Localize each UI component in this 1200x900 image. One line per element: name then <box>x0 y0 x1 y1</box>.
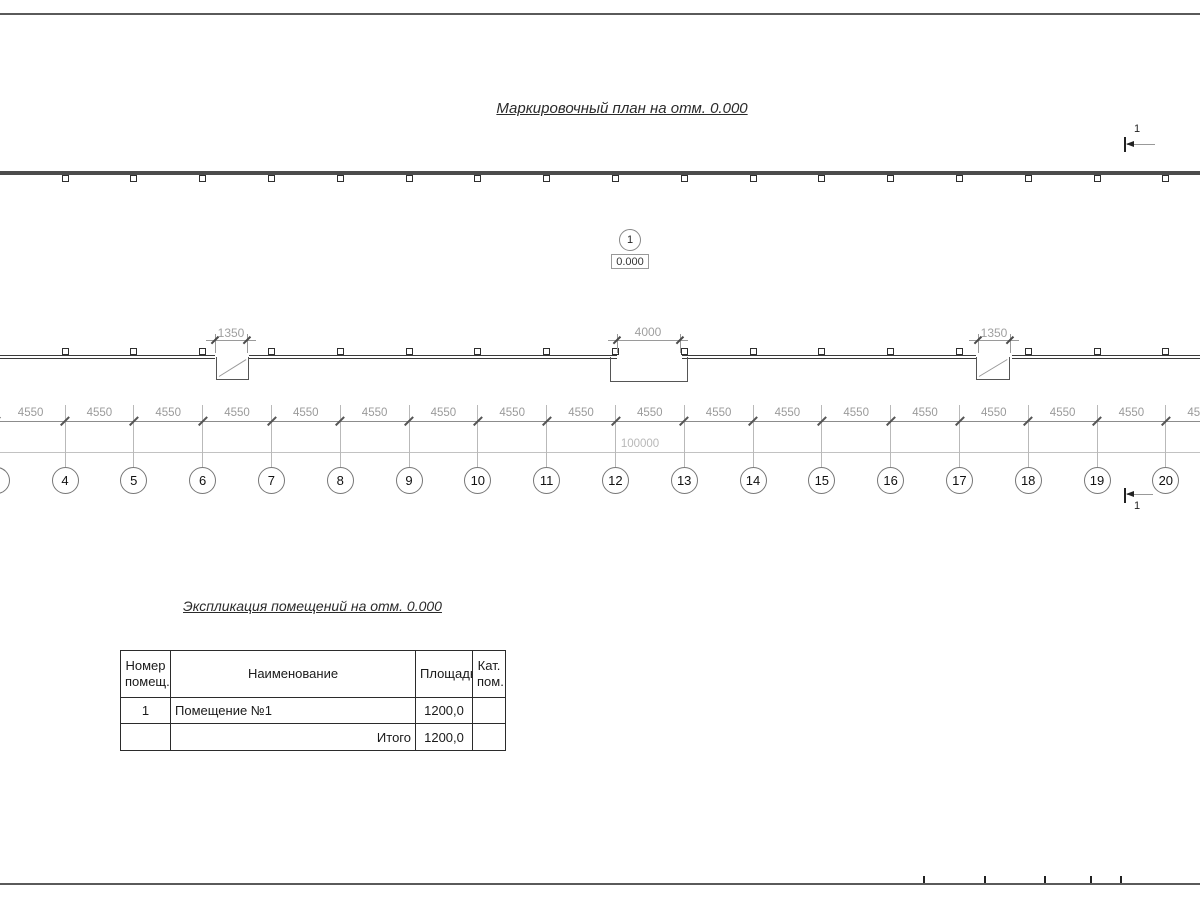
wall-top <box>0 171 1200 175</box>
axis-extension-line <box>1028 405 1029 467</box>
column-square <box>1025 348 1032 355</box>
schedule-title: Экспликация помещений на отм. 0.000 <box>120 598 505 614</box>
column-square <box>681 348 688 355</box>
column-square <box>956 348 963 355</box>
axis-circle: 12 <box>602 467 629 494</box>
axis-extension-line <box>615 405 616 467</box>
axis-extension-line <box>340 405 341 467</box>
bay-dim-label: 4550 <box>155 407 181 419</box>
column-square <box>474 348 481 355</box>
wall-middle-segment <box>0 355 215 359</box>
bay-dim-label: 4550 <box>912 407 938 419</box>
titleblock-tick <box>984 876 986 883</box>
column-square <box>887 348 894 355</box>
axis-extension-line <box>477 405 478 467</box>
wall-middle-segment <box>1012 355 1200 359</box>
axis-circle: 13 <box>671 467 698 494</box>
bay-dim-label: 4550 <box>775 407 801 419</box>
axis-circle: 14 <box>740 467 767 494</box>
axis-extension-line <box>65 405 66 467</box>
column-square <box>268 348 275 355</box>
column-square <box>130 348 137 355</box>
bay-dim-label: 4550 <box>568 407 594 419</box>
bay-dim-label: 4550 <box>706 407 732 419</box>
axis-circle: 6 <box>189 467 216 494</box>
section-number: 1 <box>1134 500 1140 512</box>
bay-dimension-line <box>0 421 1200 422</box>
bay-dim-label: 4550 <box>1050 407 1076 419</box>
col-header-name: Наименование <box>171 651 416 698</box>
bay-dim-label: 4550 <box>224 407 250 419</box>
axis-extension-line <box>821 405 822 467</box>
column-square <box>612 175 619 182</box>
total-dim-label: 100000 <box>621 438 659 450</box>
column-square <box>406 175 413 182</box>
bay-dim-label: 4550 <box>637 407 663 419</box>
cell-empty <box>473 724 506 751</box>
elevation-box: 0.000 <box>611 254 649 269</box>
column-square <box>750 348 757 355</box>
column-square <box>337 348 344 355</box>
column-square <box>337 175 344 182</box>
axis-extension-line <box>202 405 203 467</box>
axis-extension-line <box>753 405 754 467</box>
axis-circle: 20 <box>1152 467 1179 494</box>
column-square <box>62 175 69 182</box>
axis-circle: 5 <box>120 467 147 494</box>
column-square <box>268 175 275 182</box>
axis-extension-line <box>959 405 960 467</box>
axis-circle: 4 <box>52 467 79 494</box>
wall-middle-segment <box>249 355 617 359</box>
col-header-category: Кат. пом. <box>473 651 506 698</box>
column-square <box>543 348 550 355</box>
frame-bottom-line <box>0 883 1200 885</box>
bay-dim-label: 4550 <box>1119 407 1145 419</box>
axis-extension-line <box>1097 405 1098 467</box>
column-square <box>956 175 963 182</box>
column-square <box>199 348 206 355</box>
axis-extension-line <box>409 405 410 467</box>
cell-total-area: 1200,0 <box>416 724 473 751</box>
column-square <box>681 175 688 182</box>
column-square <box>818 175 825 182</box>
column-square <box>199 175 206 182</box>
room-number-marker: 1 <box>619 229 641 251</box>
cell-room-name: Помещение №1 <box>171 698 416 724</box>
cell-room-category <box>473 698 506 724</box>
column-square <box>62 348 69 355</box>
bay-dim-label: 4550 <box>981 407 1007 419</box>
opening-recess <box>610 357 688 382</box>
axis-extension-line <box>133 405 134 467</box>
axis-circle: 16 <box>877 467 904 494</box>
bay-dim-label: 4550 <box>499 407 525 419</box>
column-square <box>1162 348 1169 355</box>
axis-circle: 8 <box>327 467 354 494</box>
table-row: 1 Помещение №1 1200,0 <box>121 698 506 724</box>
drawing-canvas: Маркировочный план на отм. 0.000 1 1 0.0… <box>0 0 1200 900</box>
column-square <box>887 175 894 182</box>
section-arrow-icon <box>1126 491 1134 497</box>
axis-extension-line <box>890 405 891 467</box>
bay-dim-label: 4550 <box>87 407 113 419</box>
axis-extension-line <box>1165 405 1166 467</box>
column-square <box>750 175 757 182</box>
axis-extension-line <box>546 405 547 467</box>
axis-extension-line <box>684 405 685 467</box>
bay-dim-label: 4550 <box>293 407 319 419</box>
room-schedule-table: Номер помещ. Наименование Площадь Кат. п… <box>120 650 506 751</box>
bay-dim-label: 4550 <box>431 407 457 419</box>
section-number: 1 <box>1134 123 1140 135</box>
opening-width-label: 1350 <box>218 326 245 340</box>
section-arrow-icon <box>1126 141 1134 147</box>
bay-dim-label: 4550 <box>362 407 388 419</box>
axis-extension-line <box>271 405 272 467</box>
column-square <box>1025 175 1032 182</box>
axis-circle: 18 <box>1015 467 1042 494</box>
cell-room-area: 1200,0 <box>416 698 473 724</box>
column-square <box>474 175 481 182</box>
bay-dim-label: 4550 <box>1187 407 1200 419</box>
wall-middle-segment <box>682 355 976 359</box>
column-square <box>543 175 550 182</box>
table-total-row: Итого 1200,0 <box>121 724 506 751</box>
axis-circle-partial <box>0 467 10 494</box>
axis-circle: 9 <box>396 467 423 494</box>
opening-width-label: 1350 <box>981 326 1008 340</box>
column-square <box>1094 175 1101 182</box>
frame-top-line <box>0 13 1200 15</box>
plan-title: Маркировочный план на отм. 0.000 <box>496 100 747 117</box>
cell-empty <box>121 724 171 751</box>
column-square <box>1094 348 1101 355</box>
axis-circle: 7 <box>258 467 285 494</box>
axis-circle: 17 <box>946 467 973 494</box>
titleblock-tick <box>1090 876 1092 883</box>
axis-circle: 11 <box>533 467 560 494</box>
col-header-number: Номер помещ. <box>121 651 171 698</box>
column-square <box>406 348 413 355</box>
cell-total-label: Итого <box>171 724 416 751</box>
bay-dim-label: 4550 <box>18 407 44 419</box>
axis-circle: 19 <box>1084 467 1111 494</box>
column-square <box>818 348 825 355</box>
column-square <box>130 175 137 182</box>
col-header-area: Площадь <box>416 651 473 698</box>
titleblock-tick <box>1120 876 1122 883</box>
axis-circle: 15 <box>808 467 835 494</box>
titleblock-tick <box>923 876 925 883</box>
cell-room-number: 1 <box>121 698 171 724</box>
column-square <box>1162 175 1169 182</box>
titleblock-tick <box>1044 876 1046 883</box>
opening-width-label: 4000 <box>635 325 662 339</box>
bay-dim-label: 4550 <box>843 407 869 419</box>
table-header-row: Номер помещ. Наименование Площадь Кат. п… <box>121 651 506 698</box>
axis-circle: 10 <box>464 467 491 494</box>
total-dimension-line <box>0 452 1200 453</box>
